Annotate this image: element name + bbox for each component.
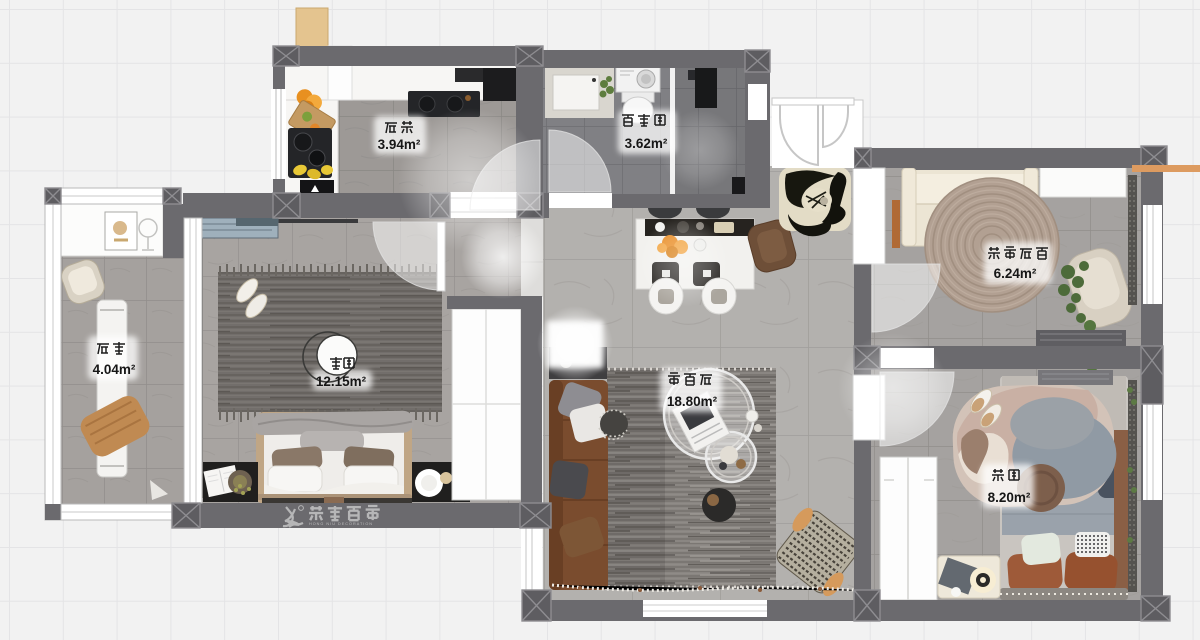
svg-text:3.94m²: 3.94m² <box>378 137 421 152</box>
svg-text:12.15m²: 12.15m² <box>316 374 367 389</box>
svg-text:8.20m²: 8.20m² <box>988 490 1031 505</box>
svg-text:4.04m²: 4.04m² <box>93 362 136 377</box>
svg-text:6.24m²: 6.24m² <box>994 266 1037 281</box>
svg-text:18.80m²: 18.80m² <box>667 394 718 409</box>
svg-text:HONG NIU DECORATION: HONG NIU DECORATION <box>309 522 373 526</box>
svg-text:3.62m²: 3.62m² <box>625 136 668 151</box>
